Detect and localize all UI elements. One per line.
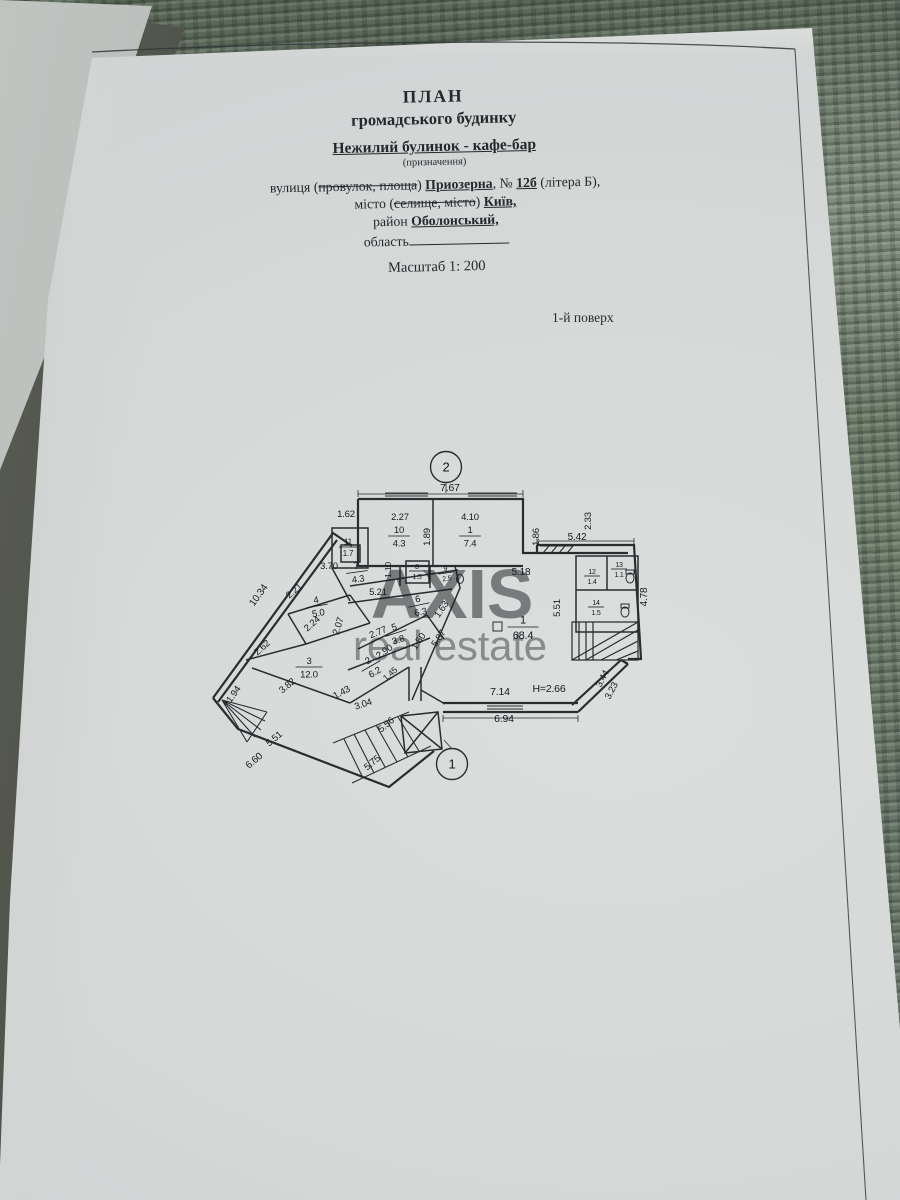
- dimension-label: Н=2.66: [533, 683, 566, 695]
- room-number: 4: [313, 595, 320, 607]
- axis-marker-number: 1: [448, 757, 455, 772]
- dimension-label: 5.42: [568, 532, 587, 543]
- room-label: 121.4: [584, 569, 600, 586]
- room-label: 45.0: [304, 593, 329, 621]
- dimension-label: 6.60: [244, 750, 266, 771]
- axis-marker-number: 2: [442, 460, 449, 475]
- dimension-label: 1.86: [531, 528, 542, 546]
- dimension-label: 7.14: [490, 686, 510, 698]
- room-number: 14: [592, 600, 600, 607]
- room-number: 12: [588, 569, 596, 576]
- plan-entrance-stairs: [222, 700, 431, 783]
- room-label: 312.0: [296, 656, 323, 680]
- plan-stairs-right: [572, 622, 638, 660]
- watermark-realestate: real estate: [353, 622, 547, 669]
- dimension-label: 2.33: [583, 512, 594, 530]
- room-area: 1.1: [614, 572, 623, 579]
- dimension-label: 5.51: [552, 599, 563, 617]
- room-label: 131.1: [611, 562, 627, 579]
- dimension-label: 7.67: [440, 482, 460, 494]
- dimension-label: 3.82: [277, 676, 298, 696]
- room-number: 10: [394, 525, 404, 536]
- dimension-label: 2.07: [331, 616, 347, 636]
- room-area: 4.3: [351, 573, 365, 586]
- room-area: 1.7: [343, 549, 354, 558]
- room-area: 5.0: [311, 607, 325, 620]
- watermark: AXIS real estate: [353, 555, 547, 669]
- dimension-label: 4.78: [639, 587, 650, 606]
- dimension-label: 2.27: [391, 512, 409, 523]
- room-number: 11: [344, 537, 353, 546]
- dimension-label: 1.89: [422, 528, 433, 546]
- dimension-label: 3.70: [320, 561, 338, 572]
- room-number: 13: [615, 562, 623, 569]
- dimension-label: 1.43: [331, 684, 352, 702]
- room-area: 7.4: [464, 538, 477, 549]
- floor-plan-drawing: 7.671.622.274.101.891.862.335.423.701.10…: [0, 0, 900, 1200]
- room-number: 3: [306, 656, 311, 667]
- room-area: 1.4: [587, 579, 596, 586]
- photo-of-floor-plan: ПЛАН громадського будинку Нежилий булино…: [0, 0, 900, 1200]
- room-label: 104.3: [388, 525, 410, 549]
- room-area: 4.3: [393, 538, 406, 549]
- dimension-label: 2.21: [284, 581, 305, 601]
- room-area: 1.5: [591, 610, 600, 617]
- dimension-label: 1.62: [337, 509, 355, 520]
- room-area: 12.0: [300, 669, 318, 680]
- room-number: 1: [467, 525, 472, 536]
- room-label: 74.3: [345, 560, 370, 587]
- dimension-label: 6.94: [494, 713, 514, 725]
- dimension-label: 1.94: [224, 684, 243, 705]
- dimension-label: 4.10: [461, 512, 479, 523]
- room-label: 17.4: [459, 525, 481, 549]
- room-label: 141.5: [588, 600, 604, 617]
- dimension-label: 10.34: [247, 582, 270, 608]
